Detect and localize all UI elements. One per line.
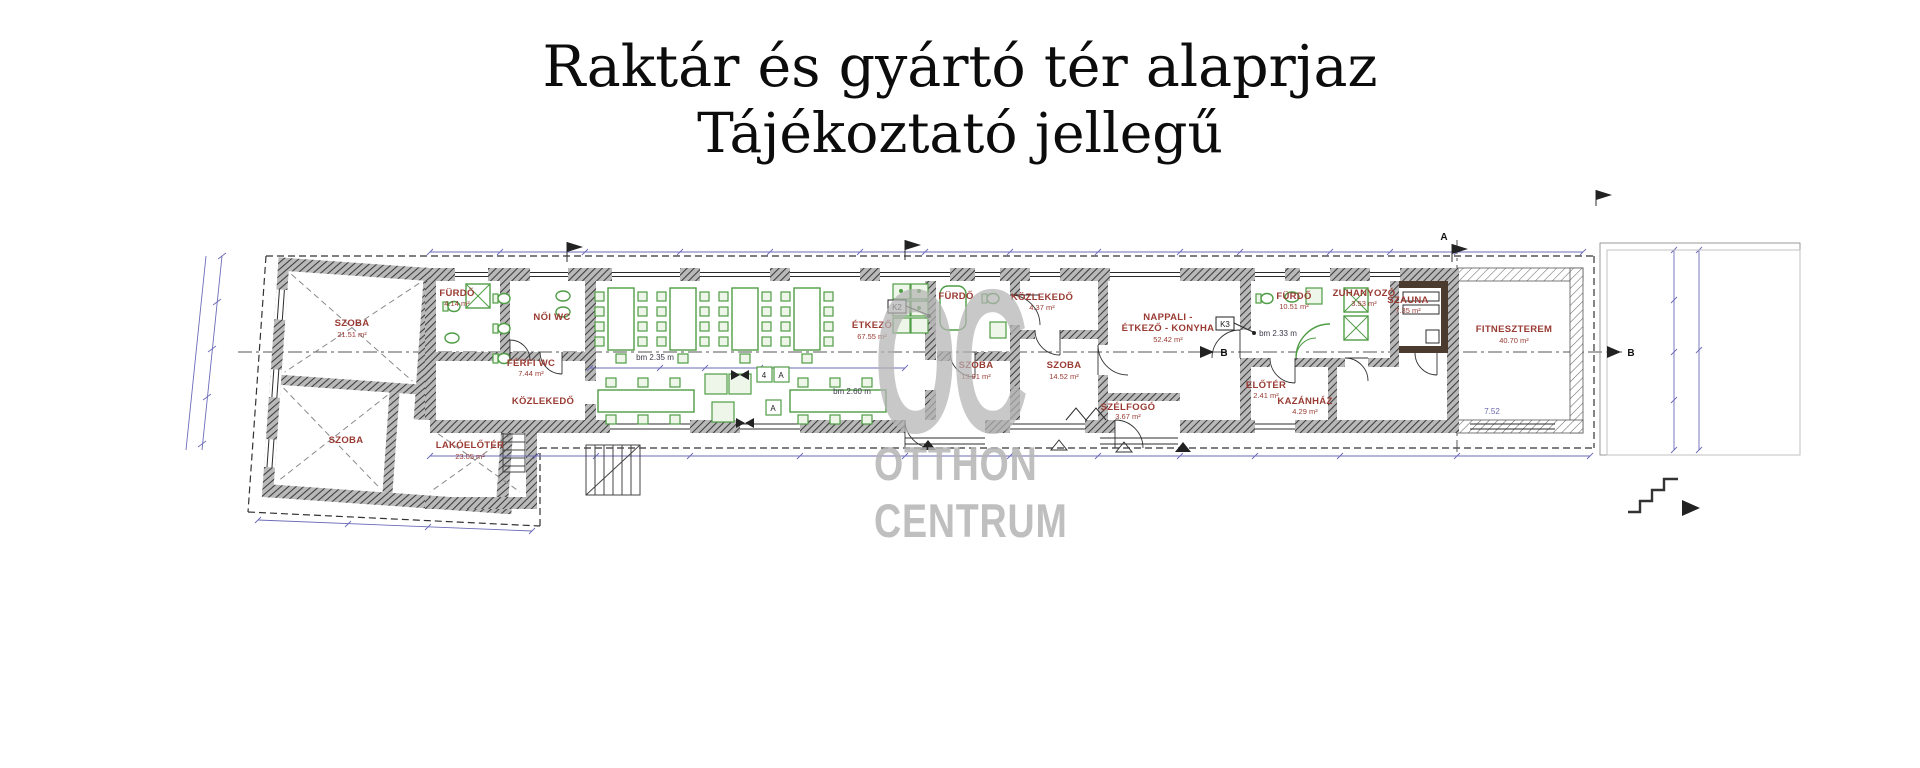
room-area-eloter: 2.41 m² xyxy=(1253,391,1279,400)
lakoeloter-area xyxy=(425,420,537,509)
room-label-nappali-1: NAPPALI - xyxy=(1143,312,1193,323)
ceiling-height-furdo: bm 2.33 m xyxy=(1259,329,1297,338)
room-label-kazanhaz: KAZÁNHÁZ xyxy=(1277,396,1332,407)
room-label-noi-wc: NŐI WC xyxy=(533,311,570,323)
room-label-eloter: ELŐTÉR xyxy=(1246,379,1286,391)
room-area-furdo-right: 10.51 m² xyxy=(1279,302,1309,311)
entrance-porches xyxy=(567,190,1700,516)
room-label-szauna: SZAUNA xyxy=(1387,295,1428,306)
floorplan-page: Raktár és gyártó tér alaprjaz Tájékoztat… xyxy=(0,0,1920,768)
room-label-furdo-right: FÜRDŐ xyxy=(1276,290,1311,302)
room-label-fitneszterem: FITNESZTEREM xyxy=(1476,324,1552,335)
room-area-szoba-wing-top: 21.51 m² xyxy=(337,330,367,339)
tag-k2: K2 xyxy=(892,303,902,312)
room-label-szoba-wing-top: SZOBA xyxy=(335,318,370,329)
room-label-szoba-2: SZOBA xyxy=(1047,360,1082,371)
room-label-furdo-left: FÜRDŐ xyxy=(439,287,474,299)
tag-4: 4 xyxy=(762,371,767,380)
floor-plan-drawing: SZOBA 21.51 m² SZOBA LAKÓELŐTÉR 23.05 m²… xyxy=(0,0,1920,768)
room-label-szoba-1: SZOBA xyxy=(959,360,994,371)
room-label-ferfi-wc: FÉRFI WC xyxy=(507,358,555,369)
room-area-szelfogo: 3.67 m² xyxy=(1115,412,1141,421)
room-label-lakoeloter: LAKÓELŐTÉR xyxy=(436,439,504,451)
axis-flags xyxy=(567,190,1612,262)
tag-a-bottom: A xyxy=(770,404,776,413)
section-marker-a-top: A xyxy=(1440,232,1447,243)
room-area-furdo-left: 4.14 m² xyxy=(444,299,470,308)
ceiling-height-etkezo2: bm 2.60 m xyxy=(833,387,871,396)
room-label-zuhanyozo: ZUHANYOZÓ xyxy=(1333,287,1396,299)
room-label-nappali-2: ÉTKEZŐ - KONYHA xyxy=(1122,322,1215,334)
room-area-zuhanyozo: 3.53 m² xyxy=(1351,299,1377,308)
section-marker-b-right: B xyxy=(1627,348,1634,359)
tag-a-top: A xyxy=(778,371,784,380)
room-label-etkezo: ÉTKEZŐ xyxy=(852,319,892,331)
room-area-szoba-2: 14.52 m² xyxy=(1049,372,1079,381)
room-label-kozlekedo-left: KÖZLEKEDŐ xyxy=(512,395,574,407)
section-marker-b-left: B xyxy=(1220,348,1227,359)
room-area-lakoeloter: 23.05 m² xyxy=(455,452,485,461)
room-area-etkezo: 67.55 m² xyxy=(857,332,887,341)
ceiling-height-etkezo: bm 2.35 m xyxy=(636,353,674,362)
room-area-fitneszterem: 40.70 m² xyxy=(1499,336,1529,345)
meander-symbol xyxy=(1628,479,1700,516)
room-area-szoba-1: 13.91 m² xyxy=(961,372,991,381)
staircase-main xyxy=(586,445,640,495)
room-area-ferfi-wc: 7.44 m² xyxy=(518,369,544,378)
room-label-kozlekedo-mid: KÖZLEKEDŐ xyxy=(1011,291,1073,303)
room-area-nappali: 52.42 m² xyxy=(1153,335,1183,344)
room-label-furdo-mid: FÜRDŐ xyxy=(938,290,973,302)
room-area-szauna: 7.35 m² xyxy=(1395,306,1421,315)
tag-k3: K3 xyxy=(1220,320,1230,329)
room-area-kazanhaz: 4.29 m² xyxy=(1292,407,1318,416)
room-label-szoba-wing-bottom: SZOBA xyxy=(329,435,364,446)
room-area-kozlekedo-mid: 4.37 m² xyxy=(1029,303,1055,312)
dim-text-fitnesz: 7.52 xyxy=(1484,407,1500,416)
